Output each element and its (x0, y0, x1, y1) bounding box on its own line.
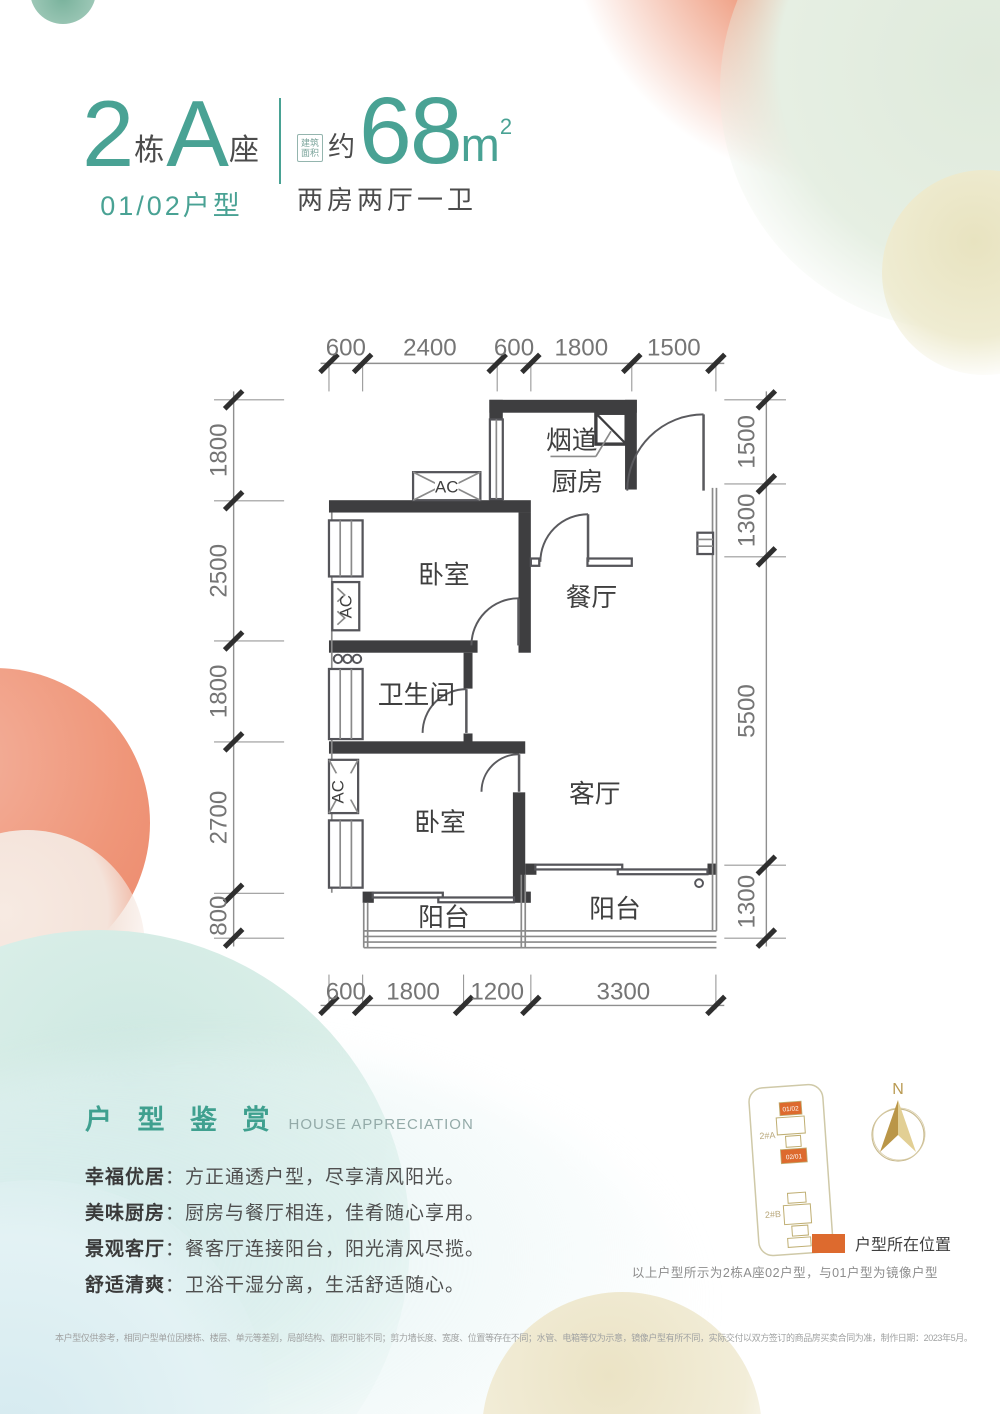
compass-needle-light (898, 1100, 916, 1152)
compass-needle-dark (880, 1100, 898, 1152)
site-caption: 以上户型所示为2栋A座02户型，与01户型为镜像户型 (632, 1262, 938, 1281)
appreciation-title: 户 型 鉴 赏 HOUSE APPRECIATION (85, 1098, 474, 1137)
svg-text:餐厅: 餐厅 (566, 583, 618, 612)
floor-plan-svg: 600 2400 600 1800 1500 600 1800 1200 330… (200, 293, 800, 1073)
svg-text:1200: 1200 (470, 978, 524, 1005)
appreciation-title-en: HOUSE APPRECIATION (289, 1116, 474, 1133)
svg-text:600: 600 (494, 335, 534, 362)
svg-text:卫生间: 卫生间 (378, 681, 455, 710)
block-letter-suffix: 座 (229, 125, 259, 169)
flyer-page: 2 栋 A 座 01/02户型 建筑 面积 约 68 m 2 两房两厅一卫 (0, 0, 1000, 1414)
svg-text:2500: 2500 (205, 544, 232, 598)
header-area-block: 建筑 面积 约 68 m 2 两房两厅一卫 (297, 86, 512, 217)
building-a-label: 2#A (759, 1130, 776, 1141)
svg-text:阳台: 阳台 (418, 903, 470, 932)
svg-text:1500: 1500 (647, 335, 701, 362)
dim-bottom: 600 1800 1200 3300 (320, 975, 725, 1015)
bedroom1-ac-platform: AC (413, 472, 480, 500)
block-number-suffix: 栋 (134, 125, 164, 169)
decor-blob-green-top-left (30, 0, 96, 24)
svg-text:5500: 5500 (734, 684, 761, 738)
appreciation-item: 美味厨房：厨房与餐厅相连，佳肴随心享用。 (85, 1196, 485, 1232)
svg-text:卧室: 卧室 (418, 561, 470, 590)
svg-text:客厅: 客厅 (569, 779, 621, 808)
header: 2 栋 A 座 01/02户型 建筑 面积 约 68 m 2 两房两厅一卫 (82, 86, 512, 223)
svg-text:1300: 1300 (734, 494, 761, 548)
unit-types: 01/02户型 (82, 184, 261, 223)
building-b: 2#B (764, 1192, 814, 1249)
svg-text:1500: 1500 (734, 415, 761, 469)
appreciation-item: 舒适清爽：卫浴干湿分离，生活舒适随心。 (85, 1268, 485, 1304)
svg-text:2400: 2400 (403, 335, 457, 362)
appreciation-item: 幸福优居：方正通透户型，尽享清风阳光。 (85, 1160, 485, 1196)
unit-location-legend: 户型所在位置 (812, 1231, 951, 1255)
svg-text:600: 600 (326, 978, 366, 1005)
item-body: ：厨房与餐厅相连，佳肴随心享用。 (165, 1203, 485, 1224)
legend-label: 户型所在位置 (855, 1231, 951, 1255)
svg-text:02/01: 02/01 (786, 1153, 803, 1161)
sliding-doors (373, 865, 708, 903)
svg-text:AC: AC (435, 477, 458, 496)
area-badge-line2: 面积 (301, 148, 319, 158)
area-badge: 建筑 面积 (297, 134, 323, 162)
svg-text:AC: AC (336, 595, 355, 618)
walls (329, 400, 716, 903)
dim-top: 600 2400 600 1800 1500 (320, 335, 725, 392)
area-superscript: 2 (500, 114, 512, 140)
item-lead: 美味厨房 (85, 1203, 165, 1224)
area-unit: m (461, 117, 500, 172)
bedroom2-ac-box: AC (329, 760, 359, 813)
svg-text:AC: AC (329, 780, 348, 803)
building-a: 01/02 02/01 2#A (757, 1101, 807, 1165)
svg-text:厨房: 厨房 (552, 468, 604, 497)
layout-description: 两房两厅一卫 (297, 180, 512, 217)
block-number: 2 (82, 86, 132, 182)
item-body: ：卫浴干湿分离，生活舒适随心。 (165, 1275, 465, 1296)
floor-plan: 600 2400 600 1800 1500 600 1800 1200 330… (200, 293, 800, 1073)
dim-left: 1800 2500 1800 2700 800 (205, 391, 284, 947)
building-b-label: 2#B (765, 1209, 782, 1220)
item-lead: 幸福优居 (85, 1167, 165, 1188)
svg-text:烟道: 烟道 (546, 426, 598, 455)
svg-text:1800: 1800 (554, 335, 608, 362)
item-lead: 舒适清爽 (85, 1275, 165, 1296)
svg-text:800: 800 (205, 896, 232, 936)
north-arrow: N (858, 1078, 938, 1178)
legend-orange-swatch (812, 1234, 845, 1253)
item-lead: 景观客厅 (85, 1239, 165, 1260)
north-label: N (892, 1081, 904, 1098)
appreciation-item: 景观客厅：餐客厅连接阳台，阳光清风尽揽。 (85, 1232, 485, 1268)
svg-text:1800: 1800 (386, 978, 440, 1005)
svg-text:1800: 1800 (205, 423, 232, 477)
appreciation-list: 幸福优居：方正通透户型，尽享清风阳光。 美味厨房：厨房与餐厅相连，佳肴随心享用。… (85, 1160, 485, 1304)
svg-text:卧室: 卧室 (414, 808, 466, 837)
footer-disclaimer: 本户型仅供参考，相同户型单位因楼栋、楼层、单元等差别，局部结构、面积可能不同；剪… (55, 1331, 975, 1344)
item-body: ：方正通透户型，尽享清风阳光。 (165, 1167, 465, 1188)
dim-right: 1500 1300 5500 1300 (724, 391, 786, 947)
block-letter: A (166, 86, 227, 182)
svg-text:1300: 1300 (734, 875, 761, 929)
header-divider (279, 98, 281, 184)
appreciation-title-cn: 户 型 鉴 赏 (85, 1098, 279, 1137)
svg-text:3300: 3300 (597, 978, 651, 1005)
area-badge-line1: 建筑 (301, 138, 319, 148)
item-body: ：餐客厅连接阳台，阳光清风尽揽。 (165, 1239, 485, 1260)
area-approx: 约 (328, 125, 355, 164)
svg-text:600: 600 (326, 335, 366, 362)
balcony-drain (695, 879, 703, 887)
svg-text:01/02: 01/02 (782, 1105, 799, 1113)
svg-text:阳台: 阳台 (589, 894, 641, 923)
header-block-title: 2 栋 A 座 01/02户型 (82, 86, 261, 223)
svg-text:1800: 1800 (205, 665, 232, 719)
area-value: 68 (359, 86, 461, 176)
svg-text:2700: 2700 (205, 791, 232, 845)
left-bay: AC AC (329, 513, 363, 893)
